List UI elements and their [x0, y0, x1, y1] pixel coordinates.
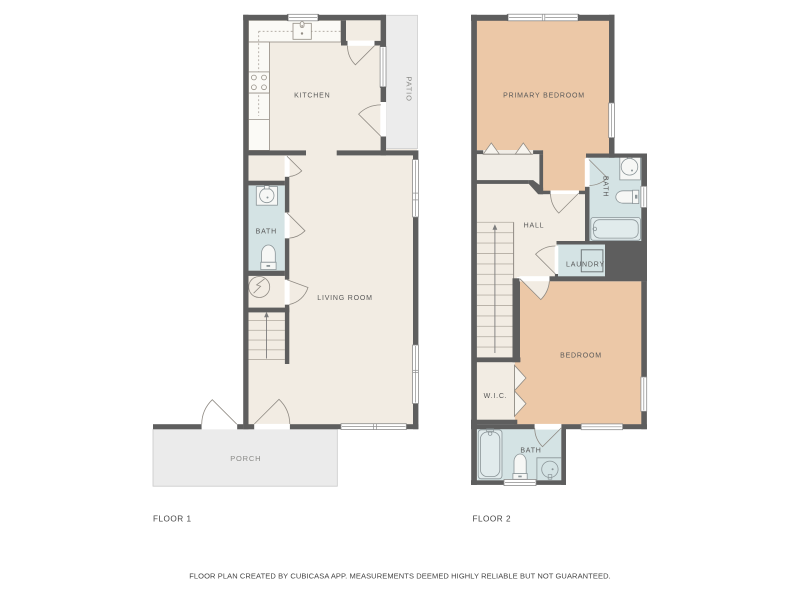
svg-text:LAUNDRY: LAUNDRY	[566, 261, 605, 268]
svg-text:BATH: BATH	[602, 176, 609, 197]
svg-text:BEDROOM: BEDROOM	[560, 353, 602, 360]
svg-text:BATH: BATH	[256, 229, 277, 236]
svg-text:FLOOR PLAN CREATED BY CUBICASA: FLOOR PLAN CREATED BY CUBICASA APP. MEAS…	[189, 572, 611, 581]
svg-text:LIVING ROOM: LIVING ROOM	[317, 295, 372, 302]
svg-text:KITCHEN: KITCHEN	[294, 93, 330, 100]
svg-text:PATIO: PATIO	[405, 76, 414, 101]
svg-text:W.I.C.: W.I.C.	[484, 393, 508, 400]
svg-text:FLOOR 2: FLOOR 2	[473, 515, 512, 524]
svg-text:HALL: HALL	[524, 223, 545, 230]
svg-text:PORCH: PORCH	[230, 454, 261, 463]
svg-text:PRIMARY BEDROOM: PRIMARY BEDROOM	[503, 93, 585, 100]
svg-text:FLOOR 1: FLOOR 1	[153, 515, 192, 524]
svg-text:BATH: BATH	[520, 448, 541, 455]
